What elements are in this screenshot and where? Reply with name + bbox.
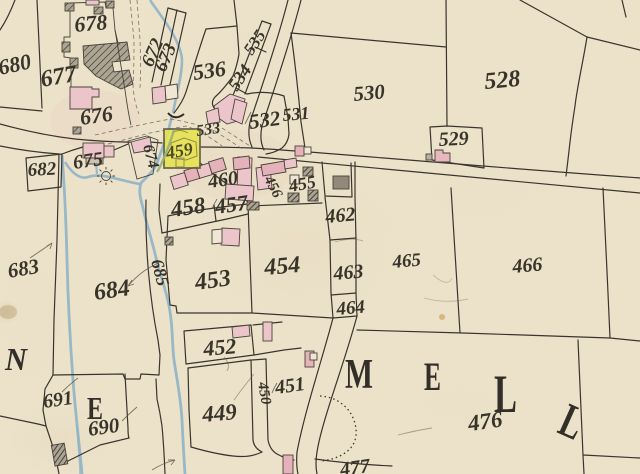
svg-text:682: 682 [27,159,57,181]
svg-text:529: 529 [438,127,469,151]
svg-text:476: 476 [465,406,504,436]
svg-text:457: 457 [212,189,250,219]
svg-text:E: E [424,354,441,399]
svg-text:477: 477 [338,455,373,474]
svg-text:528: 528 [483,66,521,95]
svg-text:466: 466 [511,253,544,278]
svg-text:458: 458 [168,192,207,222]
svg-text:536: 536 [191,56,227,85]
svg-text:675: 675 [72,148,105,174]
svg-text:449: 449 [200,399,238,427]
svg-text:453: 453 [192,265,232,296]
svg-text:454: 454 [262,252,301,281]
svg-text:532: 532 [247,106,282,134]
svg-text:690: 690 [86,413,121,441]
svg-text:676: 676 [78,101,114,130]
svg-text:451: 451 [273,373,307,399]
svg-text:N: N [4,341,29,377]
svg-text:533: 533 [195,120,221,140]
svg-text:465: 465 [391,250,423,274]
svg-text:530: 530 [352,79,386,106]
svg-text:462: 462 [324,203,357,228]
svg-text:463: 463 [332,260,365,285]
svg-text:684: 684 [92,275,131,306]
svg-text:691: 691 [42,387,75,413]
svg-text:452: 452 [201,333,237,361]
svg-text:460: 460 [206,167,240,193]
svg-text:464: 464 [335,297,366,320]
svg-text:M: M [345,352,373,398]
svg-text:531: 531 [282,103,311,125]
svg-text:678: 678 [73,9,108,37]
